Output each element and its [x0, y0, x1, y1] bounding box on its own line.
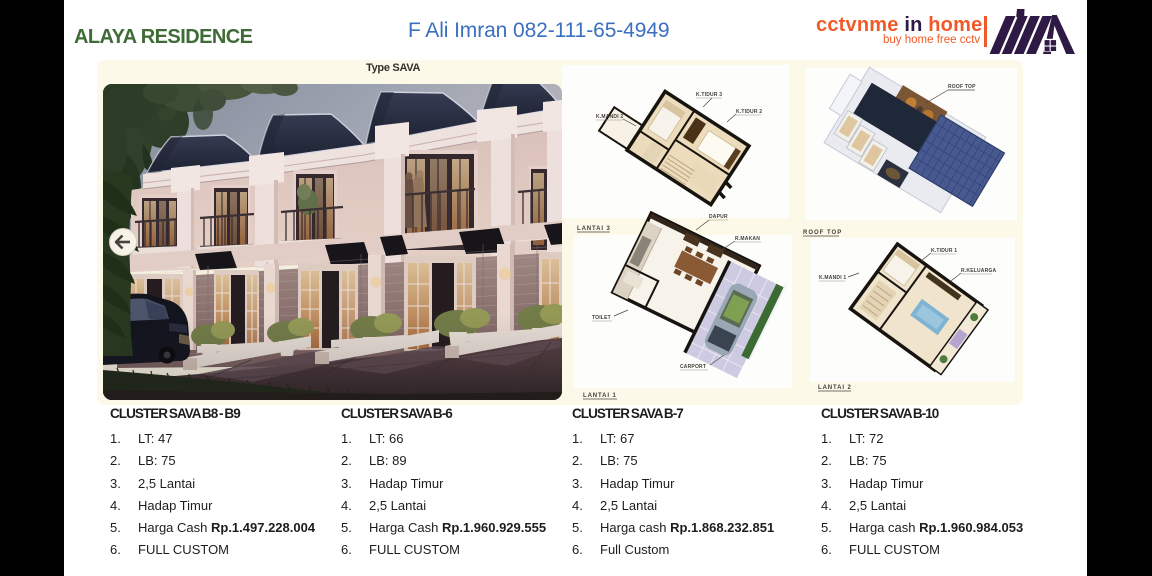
- svg-text:ROOF TOP: ROOF TOP: [803, 230, 842, 236]
- svg-text:K.TIDUR 3: K.TIDUR 3: [696, 92, 722, 98]
- svg-text:K.TIDUR 1: K.TIDUR 1: [931, 248, 957, 254]
- svg-text:LANTAI 2: LANTAI 2: [818, 385, 852, 391]
- svg-text:K.MANDI 1: K.MANDI 1: [819, 275, 846, 281]
- svg-text:CARPORT: CARPORT: [680, 364, 706, 370]
- svg-text:TOILET: TOILET: [592, 315, 611, 321]
- svg-text:LANTAI 1: LANTAI 1: [583, 393, 617, 399]
- svg-text:LANTAI 3: LANTAI 3: [577, 226, 611, 232]
- svg-text:K.TIDUR 2: K.TIDUR 2: [736, 109, 762, 115]
- svg-text:ROOF TOP: ROOF TOP: [948, 84, 976, 90]
- svg-text:DAPUR: DAPUR: [709, 214, 728, 220]
- svg-text:K.MANDI 2: K.MANDI 2: [596, 114, 623, 120]
- svg-text:R.KELUARGA: R.KELUARGA: [961, 268, 997, 274]
- svg-text:R.MAKAN: R.MAKAN: [735, 236, 760, 242]
